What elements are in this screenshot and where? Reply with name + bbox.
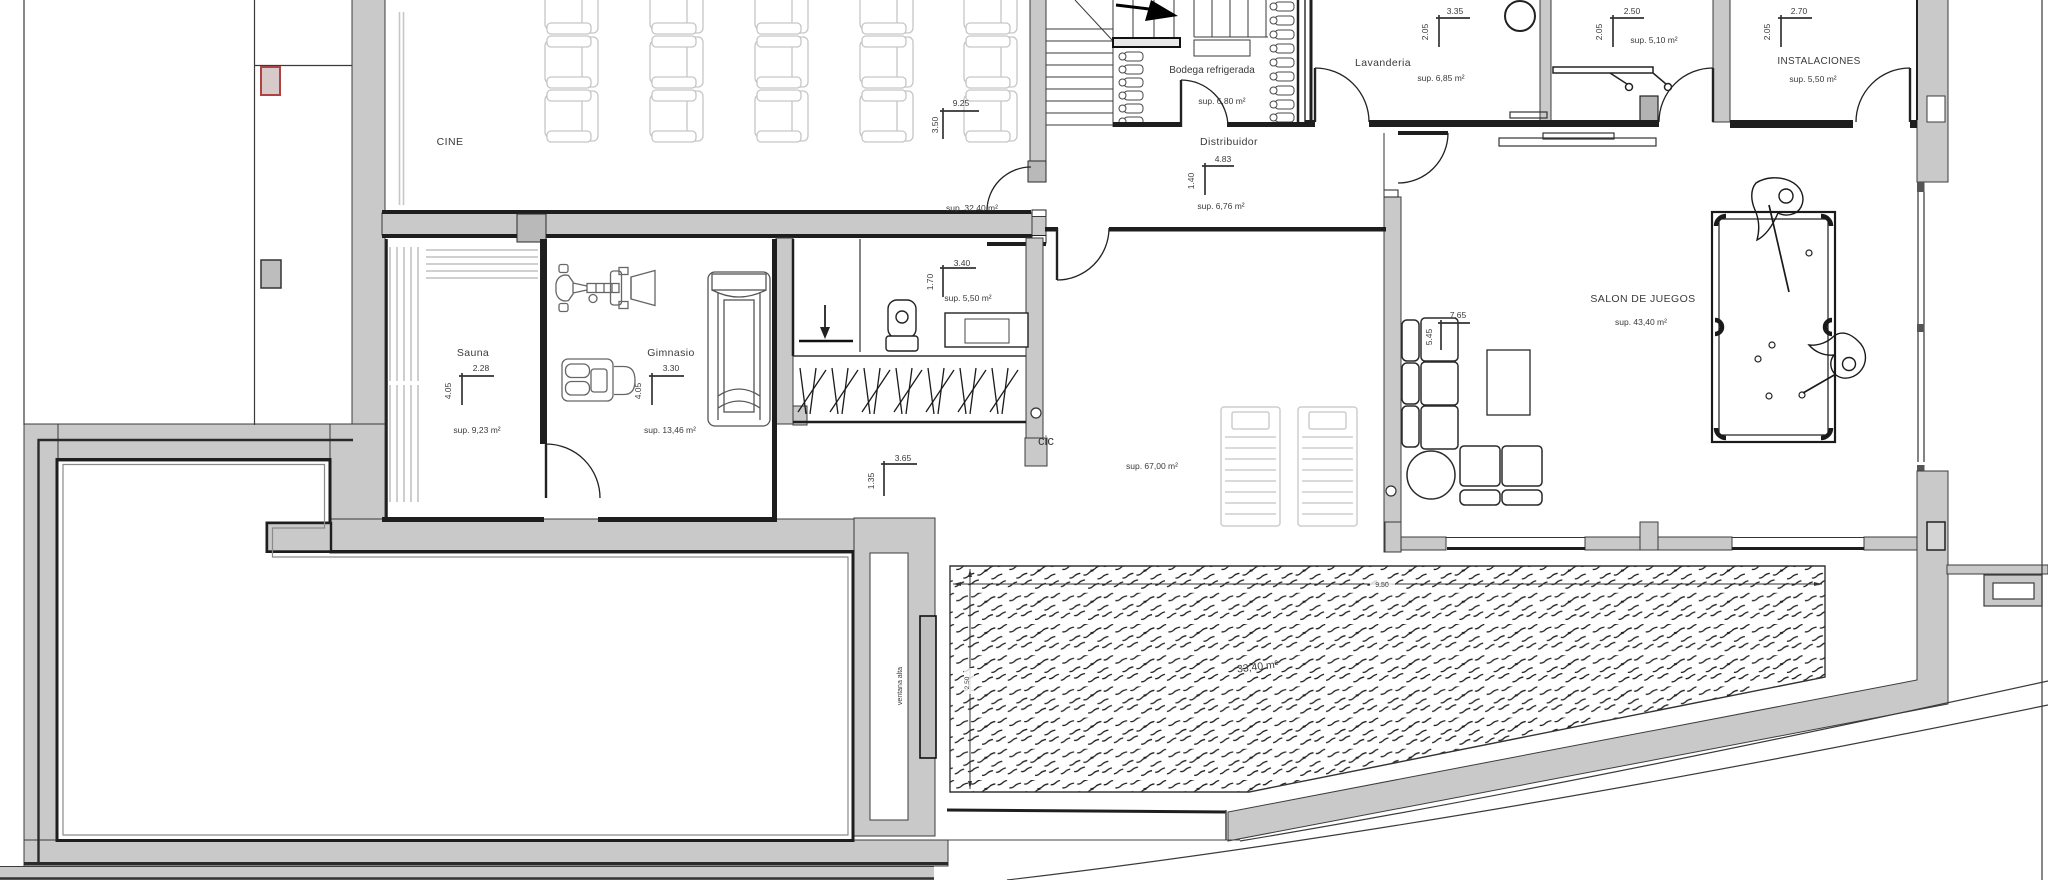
svg-text:1.35: 1.35 xyxy=(866,472,876,489)
svg-text:Distribuidor: Distribuidor xyxy=(1200,136,1258,148)
svg-text:5.45: 5.45 xyxy=(1424,328,1434,345)
svg-text:1.40: 1.40 xyxy=(1186,172,1196,189)
svg-text:2.28: 2.28 xyxy=(473,363,490,373)
svg-text:SALON DE JUEGOS: SALON DE JUEGOS xyxy=(1590,293,1695,305)
svg-text:sup. 67,00 m²: sup. 67,00 m² xyxy=(1126,461,1178,471)
svg-text:9.50: 9.50 xyxy=(1375,582,1389,589)
svg-text:3.50: 3.50 xyxy=(930,116,940,133)
svg-text:1.70: 1.70 xyxy=(925,273,935,290)
svg-text:3.65: 3.65 xyxy=(895,453,912,463)
svg-text:4.83: 4.83 xyxy=(1215,154,1232,164)
svg-text:Bodega refrigerada: Bodega refrigerada xyxy=(1169,65,1255,76)
svg-text:2.50: 2.50 xyxy=(964,676,971,689)
svg-text:4.05: 4.05 xyxy=(443,382,453,399)
svg-text:3.30: 3.30 xyxy=(663,363,680,373)
svg-text:Sauna: Sauna xyxy=(457,347,489,359)
svg-text:2.50: 2.50 xyxy=(1624,6,1641,16)
svg-text:Gimnasio: Gimnasio xyxy=(647,347,695,359)
svg-text:INSTALACIONES: INSTALACIONES xyxy=(1777,56,1860,67)
svg-text:sup. 9,23 m²: sup. 9,23 m² xyxy=(453,425,500,435)
svg-text:cic: cic xyxy=(1038,433,1054,448)
svg-text:sup. 13,46 m²: sup. 13,46 m² xyxy=(644,425,696,435)
svg-text:2.05: 2.05 xyxy=(1762,23,1772,40)
svg-text:2.05: 2.05 xyxy=(1420,23,1430,40)
svg-text:Lavanderia: Lavanderia xyxy=(1355,57,1411,69)
svg-text:sup. 5,50 m²: sup. 5,50 m² xyxy=(1789,74,1836,84)
svg-text:sup. 5,10 m²: sup. 5,10 m² xyxy=(1630,35,1677,45)
svg-text:2.05: 2.05 xyxy=(1594,23,1604,40)
svg-text:3.35: 3.35 xyxy=(1447,6,1464,16)
svg-text:sup. 6,76 m²: sup. 6,76 m² xyxy=(1197,201,1244,211)
svg-text:sup. 32,40 m²: sup. 32,40 m² xyxy=(946,203,998,213)
svg-text:7.65: 7.65 xyxy=(1450,310,1467,320)
svg-text:3.40: 3.40 xyxy=(954,258,971,268)
svg-text:sup. 6,85 m²: sup. 6,85 m² xyxy=(1417,73,1464,83)
svg-text:2.70: 2.70 xyxy=(1791,6,1808,16)
svg-text:sup. 43,40 m²: sup. 43,40 m² xyxy=(1615,317,1667,327)
svg-text:CINE: CINE xyxy=(437,136,464,148)
svg-text:9.25: 9.25 xyxy=(953,98,970,108)
svg-text:ventana alta: ventana alta xyxy=(897,667,904,705)
svg-text:sup. 5,50 m²: sup. 5,50 m² xyxy=(944,293,991,303)
